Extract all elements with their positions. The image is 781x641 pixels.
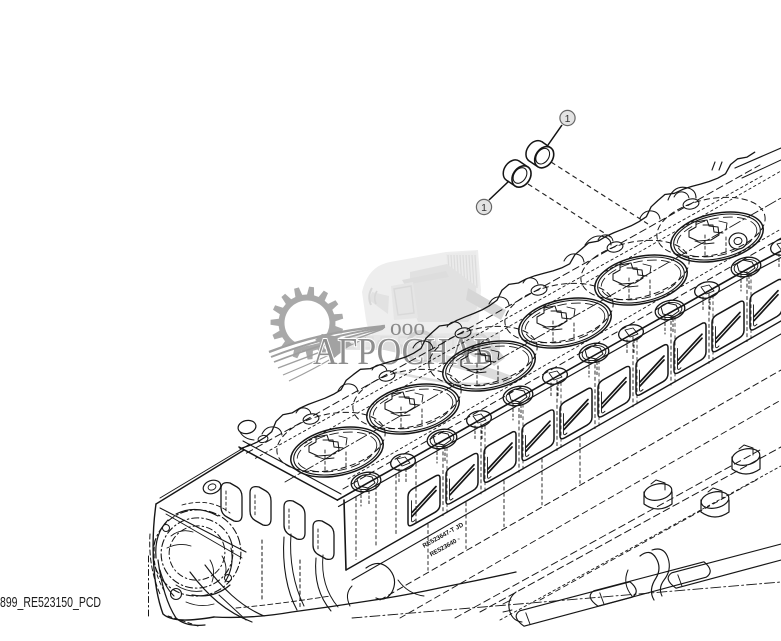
svg-text:899_RE523150_PCD: 899_RE523150_PCD bbox=[0, 594, 101, 611]
svg-text:1: 1 bbox=[481, 202, 487, 214]
svg-text:1: 1 bbox=[565, 113, 571, 125]
